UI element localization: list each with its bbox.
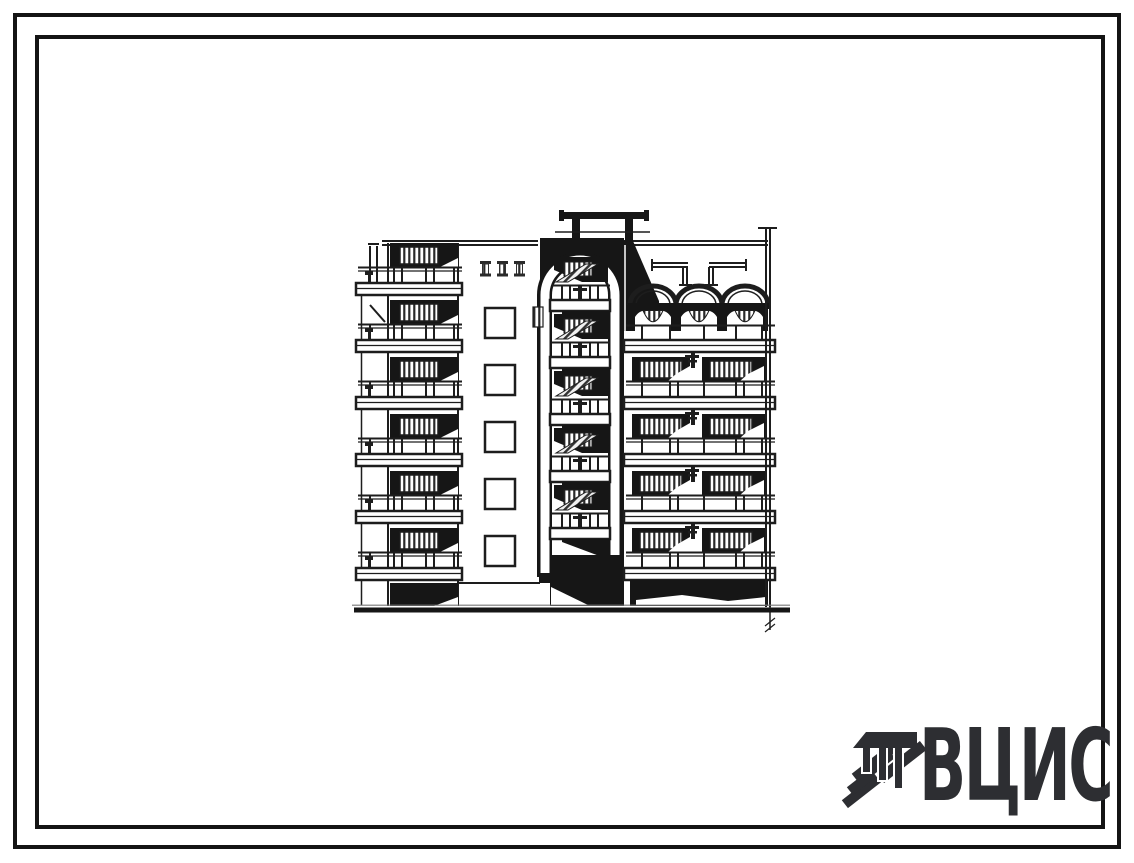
arch-ladder [533,307,543,327]
roof-chimney [555,210,650,241]
stair-wall [458,261,540,583]
logo-text: ВЦИС [919,716,1111,816]
left-wing [362,244,386,605]
ground-line [352,605,790,612]
attic-vent-slits [480,261,525,277]
stairwell-arch [533,238,624,606]
logo: ВЦИС [840,714,1105,814]
stair-windows [485,308,515,566]
left-balcony-stack [356,243,462,606]
right-balcony-stack [624,326,775,607]
building-elevation-drawing [352,205,792,637]
roof-brackets [652,259,746,285]
scanned-page: ВЦИС [0,0,1134,863]
